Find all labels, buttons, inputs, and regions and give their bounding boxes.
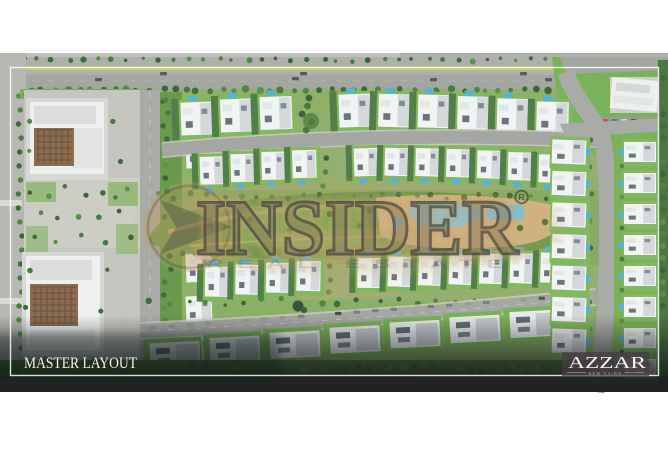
svg-text:R: R [518, 193, 525, 203]
svg-text:AZZAR: AZZAR [568, 353, 647, 372]
svg-text:REAL ESTATE: REAL ESTATE [206, 257, 516, 271]
svg-text:MASTER LAYOUT: MASTER LAYOUT [24, 355, 137, 372]
svg-text:NEW CAIRO: NEW CAIRO [589, 371, 623, 376]
